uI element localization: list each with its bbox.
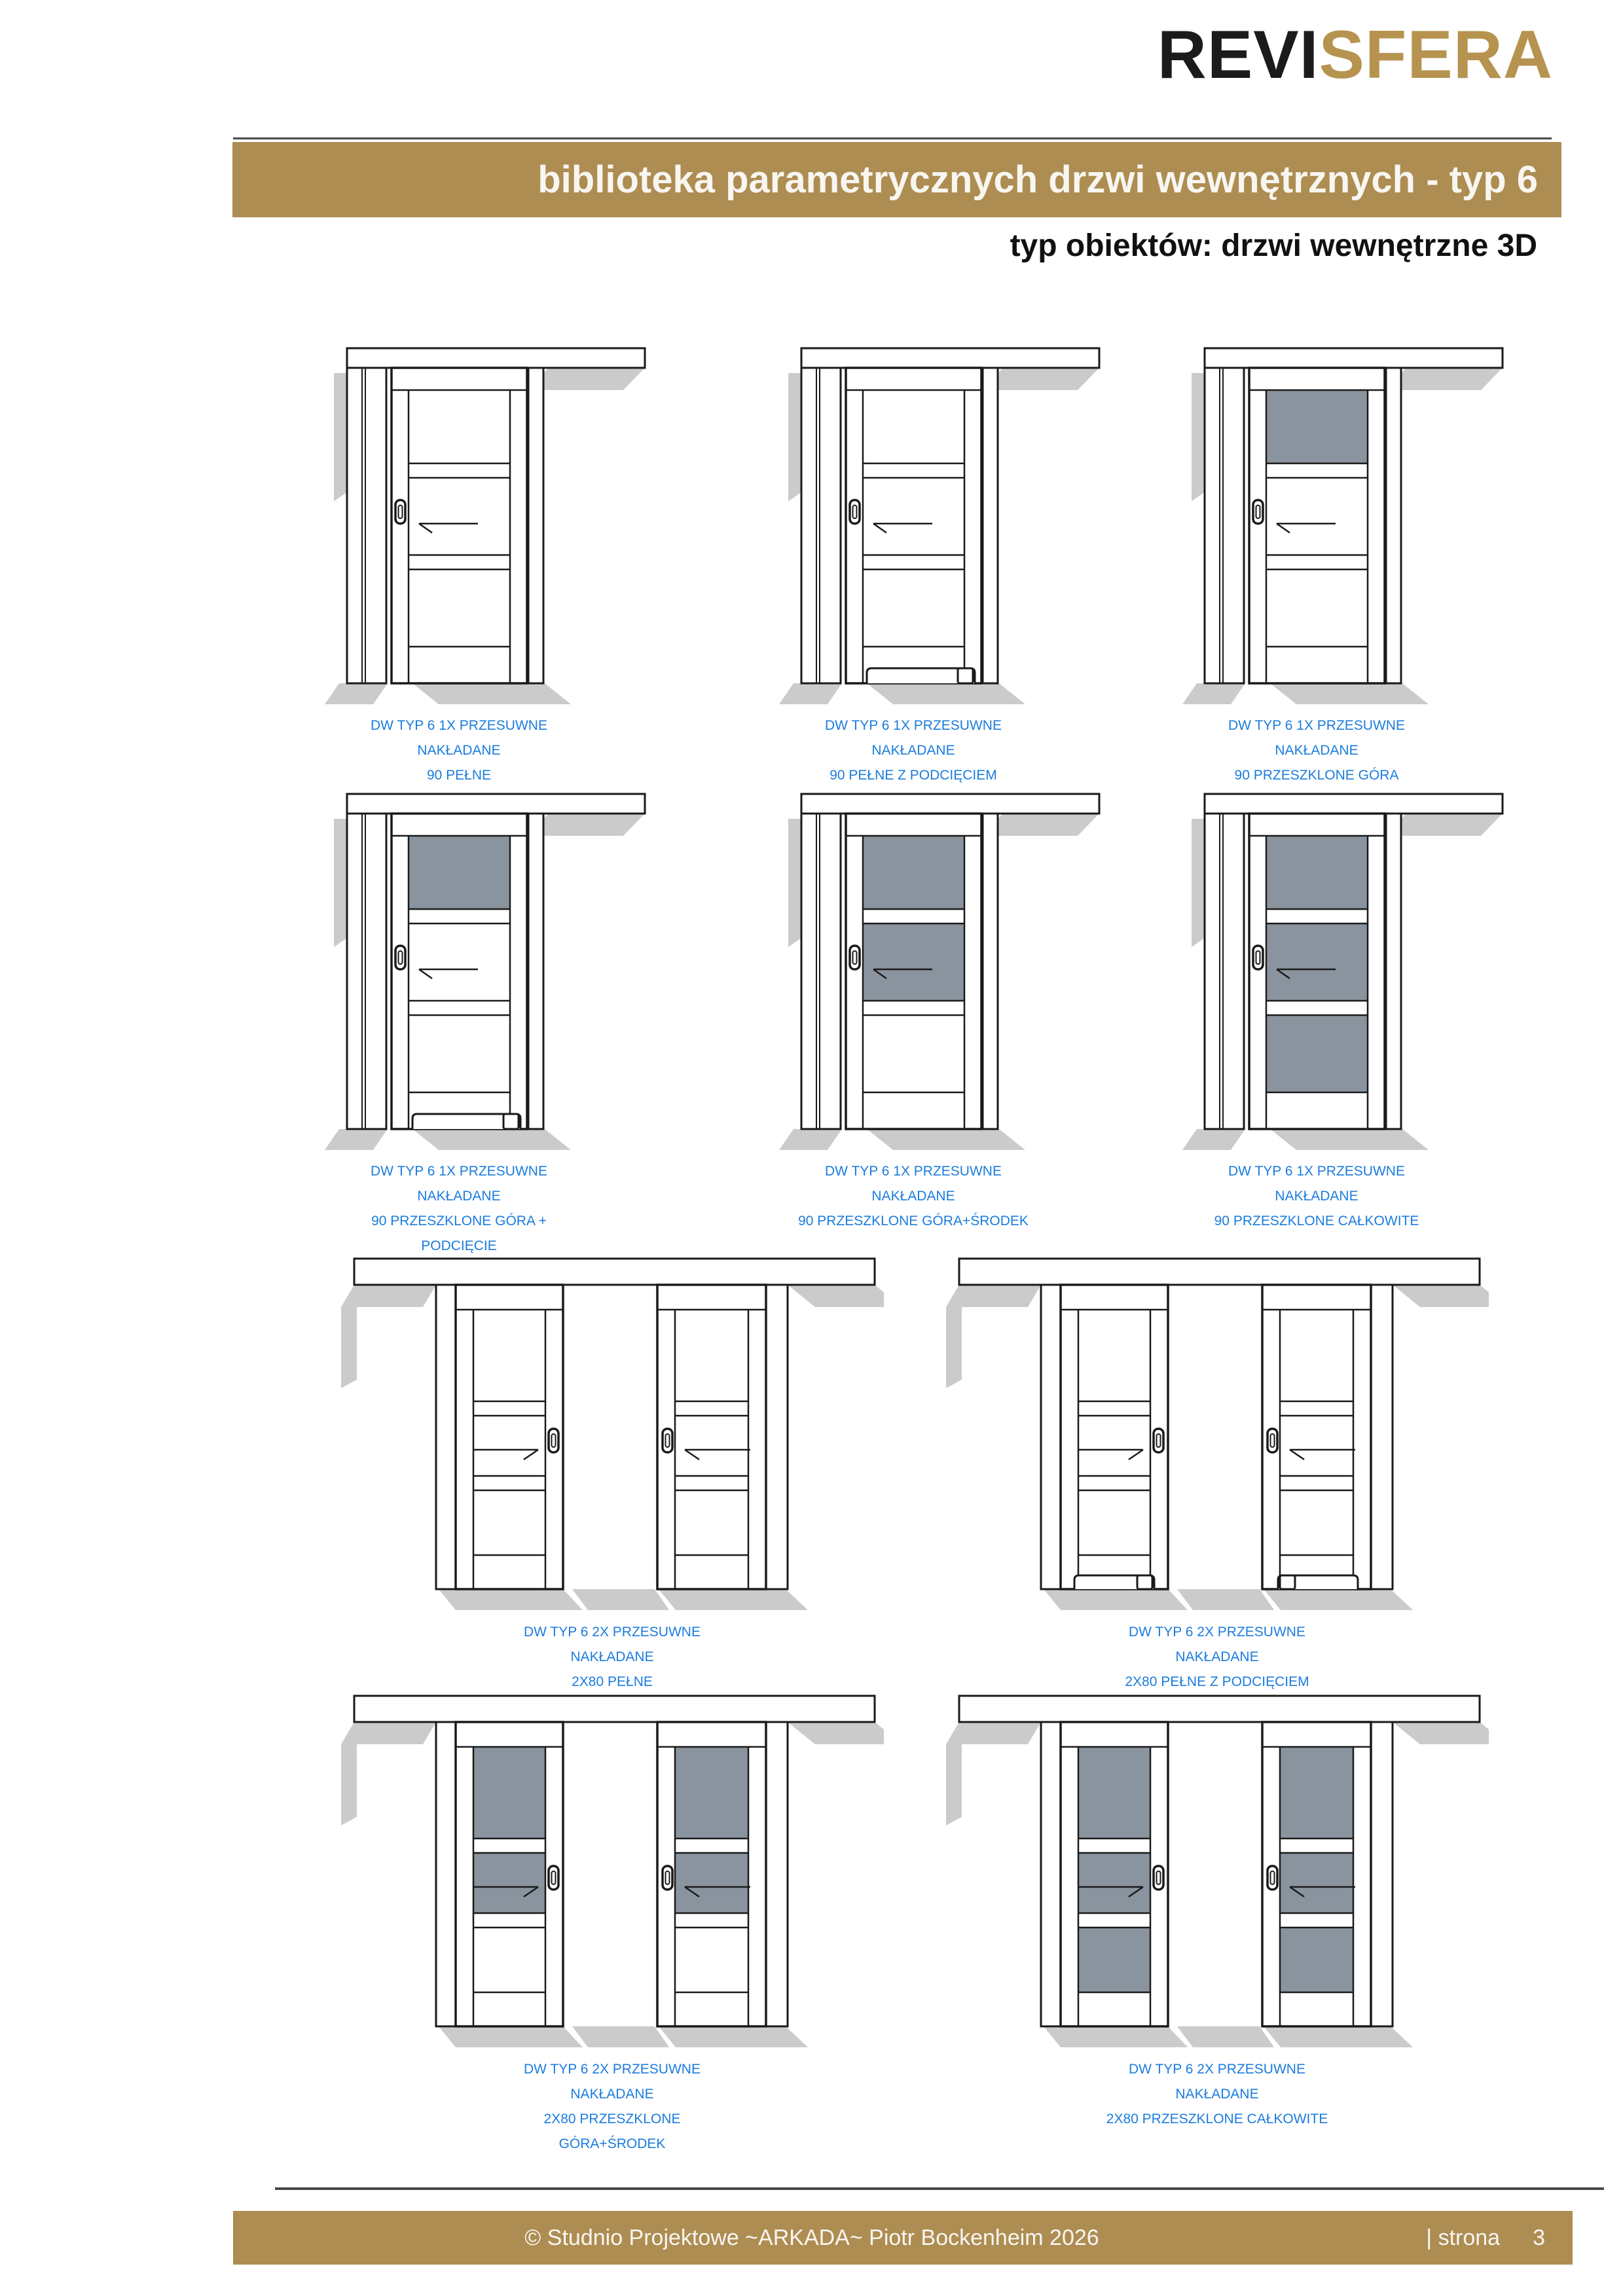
glass-panel [863, 836, 964, 909]
door-caption: DW TYP 6 1X PRZESUWNENAKŁADANE90 PRZESZK… [295, 1159, 623, 1259]
wall-jamb [801, 368, 841, 683]
side-jamb-strip [983, 368, 998, 683]
door-caption-line: DW TYP 6 1X PRZESUWNE [295, 1159, 623, 1184]
footer-page-indicator: | strona3 [1426, 2211, 1545, 2265]
door-illustration [932, 1246, 1489, 1638]
wall-jamb [1205, 814, 1244, 1129]
door-handle-icon [549, 1866, 558, 1890]
side-jamb-strip [1386, 814, 1401, 1129]
door-caption: DW TYP 6 1X PRZESUWNENAKŁADANE90 PEŁNE [295, 713, 623, 788]
door-handle-icon [549, 1429, 558, 1452]
side-jamb-strip [1371, 1285, 1393, 1589]
door-caption-line: NAKŁADANE [448, 2082, 776, 2107]
door-caption-line: DW TYP 6 2X PRZESUWNE [448, 1620, 776, 1645]
door-caption: DW TYP 6 1X PRZESUWNENAKŁADANE90 PEŁNE Z… [750, 713, 1077, 788]
door-figure: DW TYP 6 1X PRZESUWNENAKŁADANE90 PRZESZK… [769, 781, 1109, 1285]
door-leaf [1249, 368, 1385, 683]
glass-panel [1280, 1747, 1353, 1839]
side-jamb-strip [1371, 1722, 1393, 2026]
door-figure: DW TYP 6 2X PRZESUWNENAKŁADANE2X80 PEŁNE… [932, 1246, 1489, 1749]
door-leaf [1249, 814, 1385, 1129]
page-subtitle: typ obiektów: drzwi wewnętrzne 3D [1010, 228, 1537, 264]
door-leaf-right [657, 1285, 766, 1589]
door-handle-icon [850, 946, 860, 969]
door-caption-line: 2X80 PRZESZKLONE CAŁKOWITE [1053, 2107, 1381, 2132]
door-caption: DW TYP 6 2X PRZESUWNENAKŁADANE2X80 PRZES… [448, 2057, 776, 2157]
door-illustration [327, 1683, 884, 2075]
header-separator-line [233, 137, 1552, 139]
side-jamb-strip [1041, 1722, 1061, 2026]
door-handle-icon [1154, 1866, 1163, 1890]
door-illustration [1172, 335, 1512, 728]
logo-revi: REVI [1158, 17, 1319, 93]
door-caption-line: 90 PRZESZKLONE GÓRA + [295, 1209, 623, 1234]
door-illustration [327, 1246, 884, 1638]
door-leaf-left [456, 1285, 563, 1589]
wall-jamb [347, 814, 386, 1129]
door-caption-line: DW TYP 6 1X PRZESUWNE [750, 713, 1077, 738]
door-handle-icon [1154, 1429, 1163, 1452]
door-figure: DW TYP 6 1X PRZESUWNENAKŁADANE90 PRZESZK… [1172, 335, 1512, 839]
glass-panel [473, 1747, 545, 1839]
door-figure: DW TYP 6 2X PRZESUWNENAKŁADANE2X80 PRZES… [327, 1683, 884, 2187]
door-handle-icon [395, 946, 405, 969]
door-track [354, 1696, 875, 1722]
glass-panel [473, 1853, 545, 1913]
glass-panel [1078, 1853, 1150, 1913]
logo: REVISFERA [1158, 18, 1553, 92]
door-caption-line: NAKŁADANE [1153, 1184, 1480, 1209]
side-jamb-strip [766, 1722, 788, 2026]
door-figure: DW TYP 6 1X PRZESUWNENAKŁADANE90 PRZESZK… [314, 781, 655, 1285]
door-track [347, 794, 645, 814]
door-leaf [846, 814, 981, 1129]
title-banner: biblioteka parametrycznych drzwi wewnętr… [232, 142, 1561, 217]
glass-panel [1280, 1928, 1353, 1992]
side-jamb-strip [766, 1285, 788, 1589]
door-caption: DW TYP 6 2X PRZESUWNENAKŁADANE2X80 PRZES… [1053, 2057, 1381, 2132]
door-undercut [1278, 1575, 1358, 1589]
door-undercut [1074, 1575, 1154, 1589]
door-handle-icon [1267, 1866, 1277, 1890]
footer-bar: © Studnio Projektowe ~ARKADA~ Piotr Bock… [233, 2211, 1573, 2265]
page-title: biblioteka parametrycznych drzwi wewnętr… [538, 142, 1538, 217]
door-illustration [1172, 781, 1512, 1174]
door-caption-line: DW TYP 6 2X PRZESUWNE [1053, 1620, 1381, 1645]
glass-panel [675, 1747, 748, 1839]
door-caption-line: NAKŁADANE [750, 738, 1077, 763]
door-figure: DW TYP 6 2X PRZESUWNENAKŁADANE2X80 PRZES… [932, 1683, 1489, 2187]
glass-panel [675, 1853, 748, 1913]
door-caption-line: 90 PRZESZKLONE CAŁKOWITE [1153, 1209, 1480, 1234]
door-leaf-left [1061, 1285, 1168, 1589]
door-illustration [314, 781, 655, 1174]
door-illustration [769, 781, 1109, 1174]
door-caption-line: DW TYP 6 1X PRZESUWNE [1153, 713, 1480, 738]
door-track [801, 794, 1099, 814]
door-track [354, 1259, 875, 1285]
wall-jamb [801, 814, 841, 1129]
door-figure: DW TYP 6 2X PRZESUWNENAKŁADANE2X80 PEŁNE [327, 1246, 884, 1749]
door-caption-line: DW TYP 6 1X PRZESUWNE [295, 713, 623, 738]
door-handle-icon [1253, 500, 1263, 524]
door-handle-icon [663, 1429, 672, 1452]
glass-panel [1266, 390, 1368, 463]
door-track [959, 1259, 1480, 1285]
door-figure: DW TYP 6 1X PRZESUWNENAKŁADANE90 PEŁNE Z… [769, 335, 1109, 839]
side-jamb-strip [528, 368, 543, 683]
footer-page-label: | strona [1426, 2225, 1500, 2250]
door-caption-line: NAKŁADANE [295, 738, 623, 763]
door-caption: DW TYP 6 1X PRZESUWNENAKŁADANE90 PRZESZK… [1153, 1159, 1480, 1234]
door-figure: DW TYP 6 1X PRZESUWNENAKŁADANE90 PEŁNE [314, 335, 655, 839]
footer-copyright: © Studnio Projektowe ~ARKADA~ Piotr Bock… [524, 2211, 1099, 2265]
door-track [959, 1696, 1480, 1722]
glass-panel [1266, 1015, 1368, 1092]
side-jamb-strip [983, 814, 998, 1129]
glass-panel [1266, 924, 1368, 1001]
door-leaf-right [1262, 1722, 1371, 2026]
door-caption-line: NAKŁADANE [1153, 738, 1480, 763]
door-leaf [392, 368, 527, 683]
door-caption-line: NAKŁADANE [750, 1184, 1077, 1209]
door-undercut [867, 668, 975, 683]
door-caption-line: NAKŁADANE [295, 1184, 623, 1209]
catalog-page: { "header": { "logo_part1": "REVI", "log… [0, 0, 1623, 2296]
door-leaf-right [657, 1722, 766, 2026]
door-undercut [412, 1114, 520, 1129]
glass-panel [1266, 836, 1368, 909]
door-track [1205, 348, 1503, 368]
door-track [801, 348, 1099, 368]
door-handle-icon [1253, 946, 1263, 969]
wall-jamb [347, 368, 386, 683]
side-jamb-strip [1386, 368, 1401, 683]
door-caption-line: 2X80 PRZESZKLONE [448, 2107, 776, 2132]
door-illustration [769, 335, 1109, 728]
door-caption-line: DW TYP 6 2X PRZESUWNE [448, 2057, 776, 2082]
footer-page-number: 3 [1533, 2225, 1545, 2250]
door-handle-icon [663, 1866, 672, 1890]
logo-sfera: SFERA [1319, 17, 1553, 93]
glass-panel [1280, 1853, 1353, 1913]
footer-separator-line [275, 2187, 1604, 2190]
door-caption-line: 90 PRZESZKLONE GÓRA+ŚRODEK [750, 1209, 1077, 1234]
door-handle-icon [850, 500, 860, 524]
door-caption-line: DW TYP 6 2X PRZESUWNE [1053, 2057, 1381, 2082]
side-jamb-strip [436, 1285, 456, 1589]
side-jamb-strip [1041, 1285, 1061, 1589]
glass-panel [1078, 1747, 1150, 1839]
door-caption-line: NAKŁADANE [1053, 1645, 1381, 1670]
door-caption-line: GÓRA+ŚRODEK [448, 2132, 776, 2157]
door-leaf [392, 814, 527, 1129]
glass-panel [863, 924, 964, 1001]
door-illustration [314, 335, 655, 728]
side-jamb-strip [436, 1722, 456, 2026]
door-figure: DW TYP 6 1X PRZESUWNENAKŁADANE90 PRZESZK… [1172, 781, 1512, 1285]
door-leaf-left [1061, 1722, 1168, 2026]
door-leaf-left [456, 1722, 563, 2026]
door-handle-icon [1267, 1429, 1277, 1452]
door-caption: DW TYP 6 1X PRZESUWNENAKŁADANE90 PRZESZK… [1153, 713, 1480, 788]
door-caption-line: NAKŁADANE [1053, 2082, 1381, 2107]
door-handle-icon [395, 500, 405, 524]
door-track [1205, 794, 1503, 814]
glass-panel [1078, 1928, 1150, 1992]
side-jamb-strip [528, 814, 543, 1129]
door-track [347, 348, 645, 368]
glass-panel [409, 836, 510, 909]
door-leaf-right [1262, 1285, 1371, 1589]
door-caption: DW TYP 6 1X PRZESUWNENAKŁADANE90 PRZESZK… [750, 1159, 1077, 1234]
door-caption-line: NAKŁADANE [448, 1645, 776, 1670]
door-leaf [846, 368, 981, 683]
door-illustration [932, 1683, 1489, 2075]
door-caption-line: DW TYP 6 1X PRZESUWNE [1153, 1159, 1480, 1184]
wall-jamb [1205, 368, 1244, 683]
door-caption-line: DW TYP 6 1X PRZESUWNE [750, 1159, 1077, 1184]
